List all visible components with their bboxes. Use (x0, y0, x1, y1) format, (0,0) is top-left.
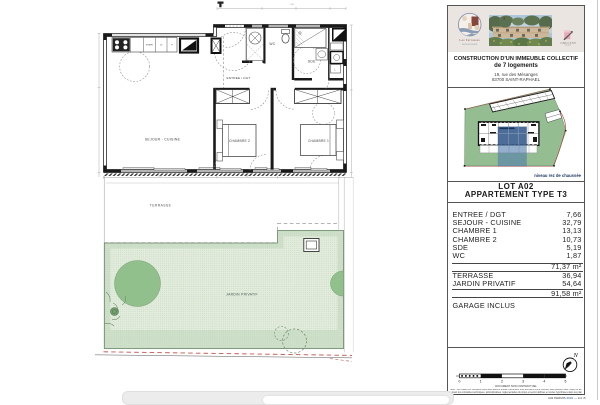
svg-text:120: 120 (290, 4, 294, 6)
svg-text:4: 4 (543, 380, 545, 384)
svg-text:DE BOULOURIS: DE BOULOURIS (462, 44, 478, 46)
svg-text:5: 5 (565, 380, 567, 384)
svg-text:3: 3 (522, 380, 524, 384)
svg-text:WC: WC (269, 42, 276, 46)
svg-text:N: N (573, 352, 579, 359)
svg-text:ENTREE / DGT: ENTREE / DGT (226, 76, 250, 80)
svg-text:2: 2 (501, 380, 503, 384)
svg-text:SEJOUR - CUISINE: SEJOUR - CUISINE (145, 138, 181, 142)
svg-text:immobilier: immobilier (565, 44, 571, 46)
svg-text:0: 0 (459, 380, 461, 384)
svg-text:JARDIN PRIVATIF: JARDIN PRIVATIF (226, 293, 258, 297)
svg-text:CHAMBRE 2: CHAMBRE 2 (229, 139, 250, 143)
svg-text:EVIER: EVIER (146, 45, 153, 47)
svg-text:TERRASSE: TERRASSE (150, 204, 172, 208)
svg-text:SDE: SDE (308, 60, 316, 64)
svg-text:Les Agences du Soleil: Les Agences du Soleil (560, 41, 576, 44)
svg-text:Les Terrasses: Les Terrasses (459, 38, 480, 42)
svg-text:CHAMBRE 1: CHAMBRE 1 (308, 139, 329, 143)
svg-text:1: 1 (480, 380, 482, 384)
